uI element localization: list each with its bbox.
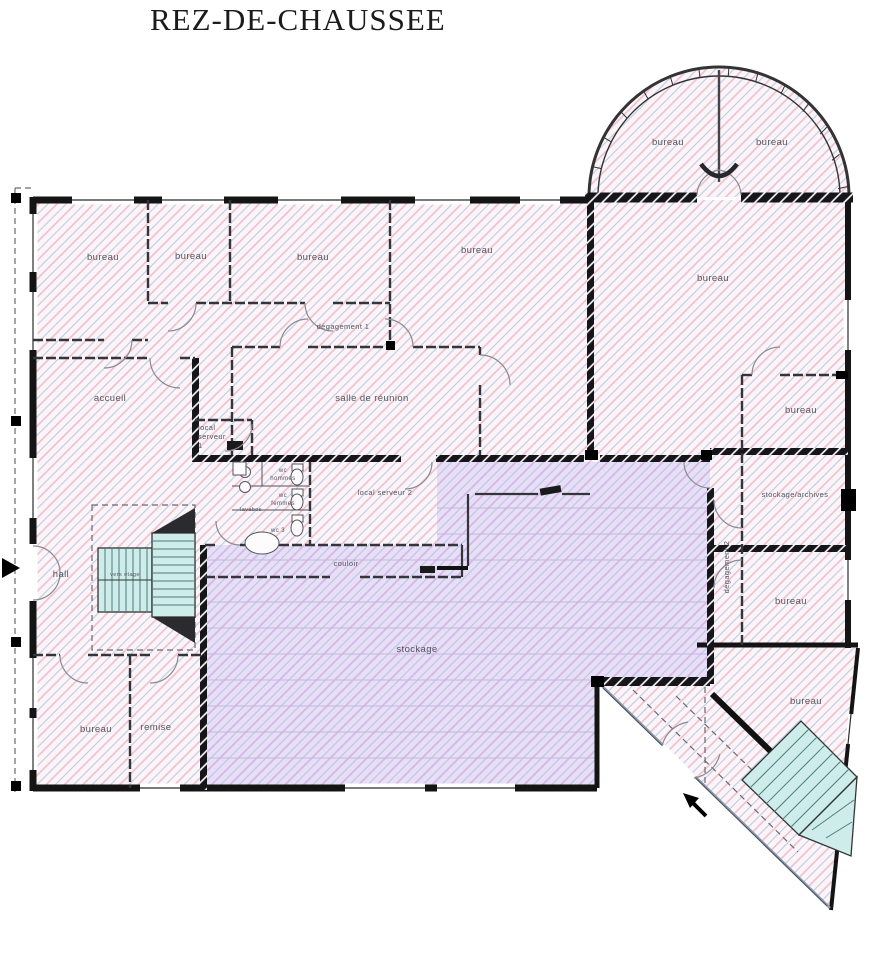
- entrance-arrow-west: [2, 558, 20, 578]
- room-label-hall: hall: [53, 569, 69, 580]
- floorplan-page: REZ-DE-CHAUSSEE: [0, 0, 884, 960]
- room-label-couloir: couloir: [334, 559, 359, 568]
- room-label-remise: remise: [141, 722, 172, 733]
- room-label-degagement-1: dégagement 1: [317, 322, 370, 331]
- svg-text:1: 1: [198, 441, 203, 450]
- room-label-bureau-right-large: bureau: [697, 273, 729, 284]
- room-label-wc-hommes: wc: [278, 468, 287, 474]
- room-label-degagement-2: dégagement 2: [722, 541, 731, 594]
- room-label-salle-reunion: salle de réunion: [335, 393, 408, 404]
- room-label-lavabos: lavabos: [240, 507, 262, 513]
- svg-text:serveur: serveur: [198, 432, 226, 441]
- room-label-bureau-sw: bureau: [80, 724, 112, 735]
- room-label-stockage-archives: stockage/archives: [762, 490, 829, 499]
- room-label-bureau-top1: bureau: [87, 252, 119, 263]
- room-label-local-serveur-2: local serveur 2: [358, 488, 413, 497]
- room-label-bureau-top4: bureau: [461, 245, 493, 256]
- entrance-arrow-se: [683, 793, 706, 816]
- room-label-wc-3: wc 3: [270, 528, 285, 534]
- stair-label-vers-etage: vers étage: [110, 572, 140, 578]
- room-label-stockage: stockage: [396, 644, 437, 655]
- room-label-tower-left: bureau: [652, 137, 684, 148]
- room-label-bureau-right-mid: bureau: [775, 596, 807, 607]
- room-label-tower-right: bureau: [756, 137, 788, 148]
- room-label-bureau-right-top: bureau: [785, 405, 817, 416]
- room-label-bureau-top2: bureau: [175, 251, 207, 262]
- room-label-bureau-top3: bureau: [297, 252, 329, 263]
- svg-text:hommes: hommes: [270, 476, 295, 482]
- room-label-wc-femmes: wc: [278, 493, 287, 499]
- svg-text:femmes: femmes: [271, 501, 295, 507]
- room-label-accueil: accueil: [94, 393, 126, 404]
- room-label-bureau-se: bureau: [790, 696, 822, 707]
- floorplan-canvas: bureau bureau bureau bureau bureau burea…: [0, 0, 884, 960]
- svg-text:local: local: [198, 423, 215, 432]
